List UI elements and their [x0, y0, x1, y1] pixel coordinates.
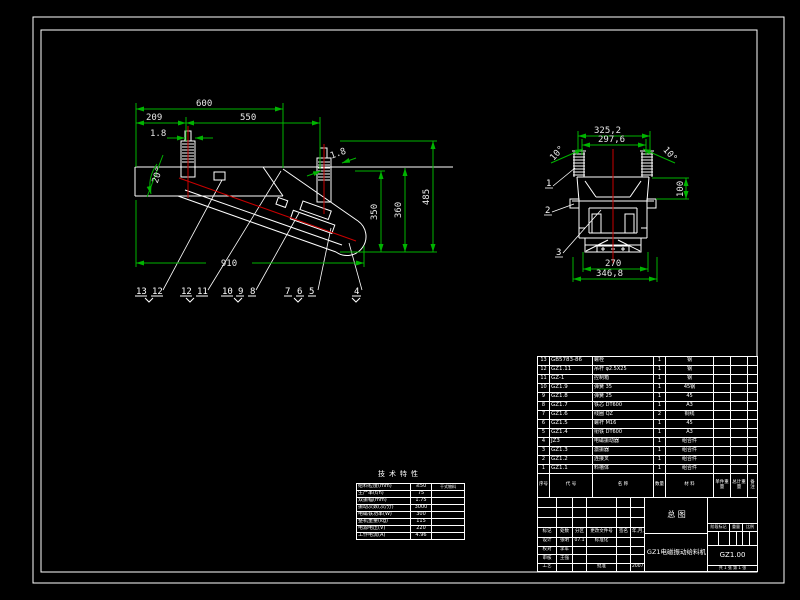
tech-note: 干式物料: [432, 484, 465, 491]
callout-8: 8: [250, 287, 255, 297]
part-remark: [748, 420, 758, 429]
callout-marks: [135, 296, 361, 302]
sign-cell: [573, 546, 587, 555]
part-remark: [748, 411, 758, 420]
dim-910: 910: [221, 259, 237, 269]
part-code: GZ1.1: [550, 465, 593, 474]
part-weight-each: [714, 366, 731, 375]
revision-cell: [573, 508, 587, 518]
callout-10: 10: [222, 287, 233, 297]
part-no: 12: [538, 366, 550, 375]
parts-list: 13GB5783-86螺栓1钢12GZ1.11吊杆 φ2.5X251钢11GZ-…: [537, 356, 758, 498]
title-block-left: 标记处数分区更改文件号签名年,月,日设计张明07.1标准化校对李军审核王强工艺批…: [537, 497, 646, 572]
trough-centerline: [179, 178, 356, 241]
tech-param: 生产率(t/h): [357, 491, 411, 498]
part-weight-each: [714, 447, 731, 456]
sign-cell: 审核: [538, 555, 557, 564]
part-weight-total: [731, 366, 748, 375]
sign-cell: [617, 563, 631, 572]
part-code: GZ1.4: [550, 429, 593, 438]
part-weight-total: [731, 357, 748, 366]
revision-header: 处数: [557, 528, 573, 538]
part-material: 钢: [666, 366, 714, 375]
company-cell: [708, 498, 758, 524]
dim-360: 360: [394, 202, 404, 218]
stage-header: 阶段标记: [708, 524, 730, 532]
revision-cell: [617, 518, 631, 528]
dim-346: 346,8: [596, 269, 623, 279]
tech-table: 给料粒度(mm)≤50干式物料生产率(t/h)75双振幅(mm)1.75振动次数…: [356, 483, 465, 540]
part-material: 45: [666, 420, 714, 429]
parts-header: 序号: [538, 474, 550, 498]
part-qty: 1: [654, 357, 666, 366]
part-qty: 1: [654, 447, 666, 456]
callout-1: 1: [546, 179, 551, 189]
part-material: A3: [666, 429, 714, 438]
drawing-sheet[interactable]: 600 209 550 910 350 360 485 1.8 1.8 20° …: [0, 0, 800, 600]
view-label: 总 图: [645, 498, 709, 534]
part-code: GZ-1: [550, 375, 593, 384]
part-remark: [748, 375, 758, 384]
callout-6: 6: [297, 287, 302, 297]
stage-cell: [750, 532, 758, 546]
tech-value: 4.96: [411, 533, 432, 540]
dim-angle-left: 10°: [548, 144, 566, 163]
part-no: 13: [538, 357, 550, 366]
centerlines: [179, 126, 613, 263]
part-no: 10: [538, 384, 550, 393]
tech-param: 电磁铁功率(W): [357, 512, 411, 519]
callout-11: 11: [197, 287, 208, 297]
weight-header: 重量: [730, 524, 743, 532]
sign-cell: 批准: [587, 563, 617, 572]
part-weight-each: [714, 384, 731, 393]
callout-12b: 12: [181, 287, 192, 297]
part-material: 铜线: [666, 411, 714, 420]
right-spring: [640, 151, 654, 177]
part-qty: 1: [654, 438, 666, 447]
sign-cell: 设计: [538, 538, 557, 547]
part-qty: 1: [654, 420, 666, 429]
dim-350: 350: [370, 204, 380, 220]
callout-5: 5: [309, 287, 314, 297]
product-name: GZ1电磁振动给料机: [645, 534, 709, 572]
sign-cell: [573, 563, 587, 572]
end-view-geometry: [544, 151, 656, 257]
tech-value: 75: [411, 491, 432, 498]
part-code: GZ1.6: [550, 411, 593, 420]
tech-value: 1.75: [411, 498, 432, 505]
revision-cell: [557, 508, 573, 518]
part-qty: 1: [654, 384, 666, 393]
part-name: 弹簧 35: [593, 384, 654, 393]
part-code: GZ1.11: [550, 366, 593, 375]
part-remark: [748, 429, 758, 438]
part-name: 线圈 QZ: [593, 411, 654, 420]
part-remark: [748, 456, 758, 465]
part-material: 钢: [666, 357, 714, 366]
sign-cell: 07.1: [573, 538, 587, 547]
tech-param: 振动次数(次/分): [357, 505, 411, 512]
parts-header: 备注: [748, 474, 758, 498]
revision-cell: [557, 498, 573, 508]
revision-cell: [573, 518, 587, 528]
dim-angle-20: 20°: [151, 166, 166, 185]
part-no: 1: [538, 465, 550, 474]
part-name: 弹簧 25: [593, 393, 654, 402]
title-block-middle: 总 图GZ1电磁振动给料机: [644, 497, 709, 572]
revision-cell: [538, 508, 557, 518]
part-name: 激振器: [593, 447, 654, 456]
part-code: GZ1.3: [550, 447, 593, 456]
part-qty: 2: [654, 411, 666, 420]
tech-note: [432, 491, 465, 498]
part-no: 5: [538, 429, 550, 438]
part-remark: [748, 402, 758, 411]
callout-leaders: [163, 171, 362, 290]
tech-value: 300: [411, 512, 432, 519]
part-weight-total: [731, 393, 748, 402]
dim-485: 485: [422, 189, 432, 205]
revision-cell: [587, 508, 617, 518]
parts-header: 材 料: [666, 474, 714, 498]
part-material: 45: [666, 393, 714, 402]
part-code: GZ1.2: [550, 456, 593, 465]
callout-2: 2: [545, 206, 550, 216]
sign-cell: [557, 563, 573, 572]
dim-270: 270: [605, 259, 621, 269]
sign-cell: [587, 555, 617, 564]
tech-param: 双振幅(mm): [357, 498, 411, 505]
part-weight-each: [714, 456, 731, 465]
stage-cell: [719, 532, 730, 546]
tech-param: 工作电流(A): [357, 533, 411, 540]
part-material: 组合件: [666, 456, 714, 465]
sheet-info: 共 1 张 第 1 张: [708, 566, 758, 572]
callout-3: 3: [556, 248, 561, 258]
part-name: 吊杆 φ2.5X25: [593, 366, 654, 375]
part-code: GZ1.5: [550, 420, 593, 429]
dim-gap-rear: 1.8: [329, 147, 348, 162]
stage-cell: [743, 532, 750, 546]
part-weight-total: [731, 375, 748, 384]
part-qty: 1: [654, 375, 666, 384]
callout-7: 7: [285, 287, 290, 297]
dim-angle-right: 10°: [660, 145, 678, 164]
sign-cell: 王强: [557, 555, 573, 564]
part-material: 45钢: [666, 384, 714, 393]
part-weight-each: [714, 375, 731, 384]
revision-header: 分区: [573, 528, 587, 538]
part-weight-total: [731, 402, 748, 411]
revision-cell: [617, 508, 631, 518]
part-code: GB5783-86: [550, 357, 593, 366]
parts-header: 单件重量: [714, 474, 731, 498]
part-weight-each: [714, 402, 731, 411]
part-weight-total: [731, 456, 748, 465]
revision-cell: [538, 498, 557, 508]
dim-100: 100: [676, 181, 686, 197]
part-material: 组合件: [666, 447, 714, 456]
part-weight-total: [731, 420, 748, 429]
dim-550: 550: [240, 113, 256, 123]
nameplate: [214, 172, 225, 180]
tech-param: 整机重量(kg): [357, 519, 411, 526]
part-remark: [748, 447, 758, 456]
part-no: 7: [538, 411, 550, 420]
tech-table-title: 技术特性: [378, 469, 458, 479]
revision-cell: [538, 518, 557, 528]
part-weight-total: [731, 447, 748, 456]
stage-cell: [708, 532, 719, 546]
part-weight-total: [731, 411, 748, 420]
sign-cell: 李军: [557, 546, 573, 555]
scale-header: 比例: [743, 524, 758, 532]
callout-9: 9: [238, 287, 243, 297]
sign-cell: 工艺: [538, 563, 557, 572]
part-weight-each: [714, 420, 731, 429]
part-name: 料槽体: [593, 465, 654, 474]
part-remark: [748, 438, 758, 447]
drawing-number: GZ1.00: [708, 546, 758, 566]
part-remark: [748, 357, 758, 366]
sign-cell: [617, 538, 631, 547]
revision-cell: [573, 498, 587, 508]
sign-cell: 张明: [557, 538, 573, 547]
dim-gap-front: 1.8: [150, 129, 166, 139]
part-material: 组合件: [666, 438, 714, 447]
part-qty: 1: [654, 456, 666, 465]
sign-cell: 校对: [538, 546, 557, 555]
dim-600: 600: [196, 99, 212, 109]
part-no: 2: [538, 456, 550, 465]
tech-note: [432, 512, 465, 519]
part-name: 控制箱: [593, 375, 654, 384]
part-no: 11: [538, 375, 550, 384]
sign-cell: [573, 555, 587, 564]
part-qty: 1: [654, 465, 666, 474]
tech-note: [432, 519, 465, 526]
part-remark: [748, 384, 758, 393]
stage-cell: [730, 532, 737, 546]
revision-header: 标记: [538, 528, 557, 538]
parts-header: 代 号: [550, 474, 593, 498]
sign-cell: [617, 555, 631, 564]
part-weight-each: [714, 357, 731, 366]
part-name: 连接叉: [593, 456, 654, 465]
part-name: 衔铁 DT600: [593, 429, 654, 438]
part-name: 电磁振动器: [593, 438, 654, 447]
parts-header: 总计重量: [731, 474, 748, 498]
sign-cell: [587, 546, 617, 555]
part-code: GZ1.9: [550, 384, 593, 393]
tech-value: 115: [411, 519, 432, 526]
part-qty: 1: [654, 393, 666, 402]
title-block-right: 阶段标记重量比例GZ1.00共 1 张 第 1 张: [707, 497, 758, 572]
part-weight-each: [714, 411, 731, 420]
sign-cell: [617, 546, 631, 555]
part-material: A3: [666, 402, 714, 411]
revision-cell: [557, 518, 573, 528]
callout-13: 13: [136, 287, 147, 297]
tech-value: 3000: [411, 505, 432, 512]
part-weight-each: [714, 429, 731, 438]
parts-header: 名 称: [593, 474, 654, 498]
end-view-leaders: [544, 168, 601, 257]
part-weight-total: [731, 384, 748, 393]
tech-note: [432, 526, 465, 533]
part-name: 铁芯 DT600: [593, 402, 654, 411]
part-no: 3: [538, 447, 550, 456]
revision-cell: [587, 518, 617, 528]
tech-note: [432, 505, 465, 512]
part-remark: [748, 465, 758, 474]
part-weight-each: [714, 393, 731, 402]
part-code: GZ1.8: [550, 393, 593, 402]
part-weight-total: [731, 438, 748, 447]
part-qty: 1: [654, 402, 666, 411]
part-material: 组合件: [666, 465, 714, 474]
part-no: 9: [538, 393, 550, 402]
part-code: GZ1.7: [550, 402, 593, 411]
revision-header: 更改文件号: [587, 528, 617, 538]
callout-4: 4: [354, 287, 359, 297]
left-spring: [572, 151, 586, 177]
dim-209: 209: [146, 113, 162, 123]
part-remark: [748, 366, 758, 375]
part-weight-total: [731, 465, 748, 474]
revision-cell: [587, 498, 617, 508]
parts-header: 数量: [654, 474, 666, 498]
part-no: 6: [538, 420, 550, 429]
part-no: 4: [538, 438, 550, 447]
callout-12a: 12: [152, 287, 163, 297]
revision-cell: [617, 498, 631, 508]
part-no: 8: [538, 402, 550, 411]
part-qty: 1: [654, 366, 666, 375]
tech-note: [432, 533, 465, 540]
tech-note: [432, 498, 465, 505]
tech-value: 220: [411, 526, 432, 533]
revision-header: 签名: [617, 528, 631, 538]
part-weight-total: [731, 429, 748, 438]
sign-cell: 标准化: [587, 538, 617, 547]
dim-297: 297,6: [598, 135, 625, 145]
part-code: JZ3: [550, 438, 593, 447]
part-name: 螺杆 M16: [593, 420, 654, 429]
part-name: 螺栓: [593, 357, 654, 366]
part-weight-each: [714, 438, 731, 447]
tech-param: 给料粒度(mm): [357, 484, 411, 491]
tech-value: ≤50: [411, 484, 432, 491]
part-qty: 1: [654, 429, 666, 438]
part-material: 钢: [666, 375, 714, 384]
part-weight-each: [714, 465, 731, 474]
part-remark: [748, 393, 758, 402]
tech-param: 电源电压(V): [357, 526, 411, 533]
